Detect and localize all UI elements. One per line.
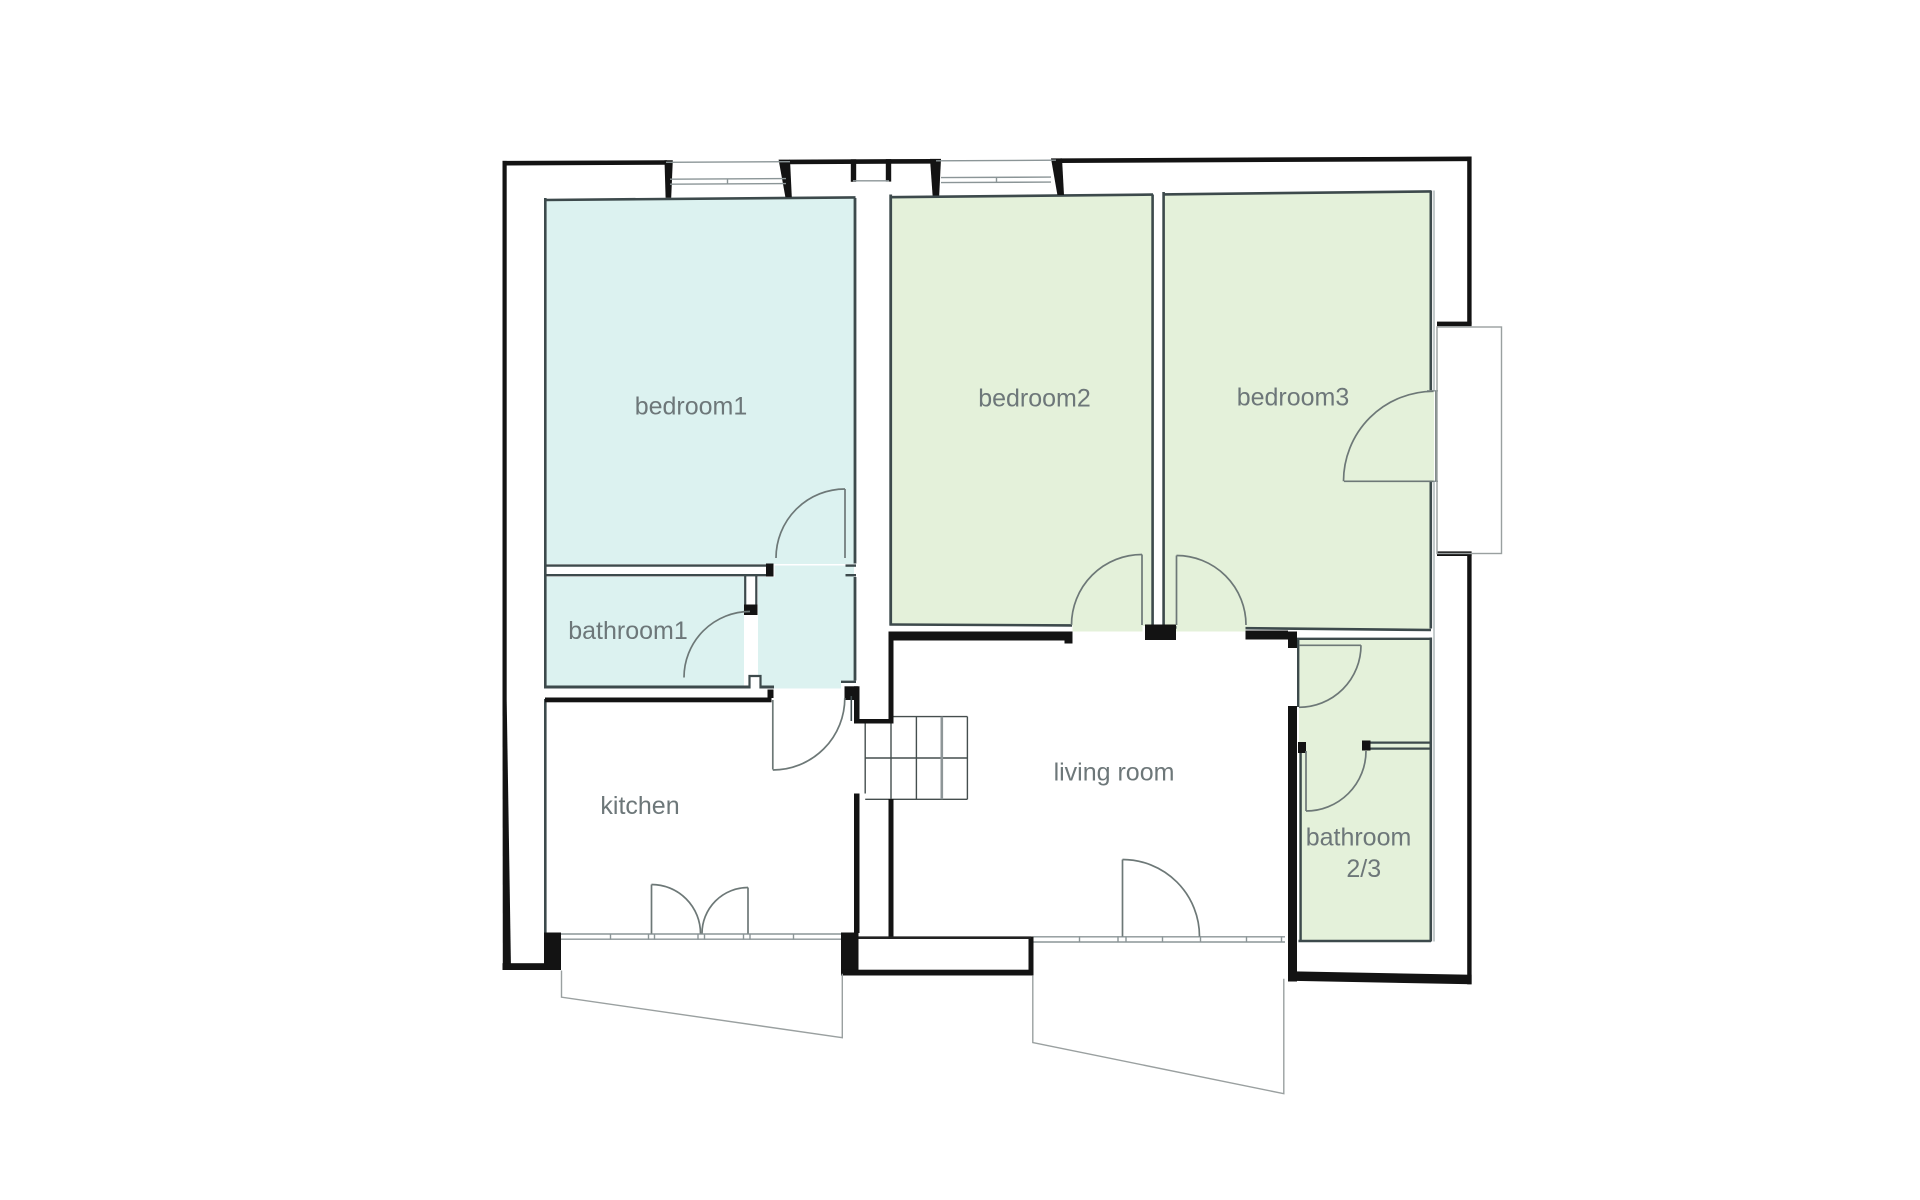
svg-text:kitchen: kitchen <box>600 792 679 820</box>
svg-text:bedroom2: bedroom2 <box>978 385 1091 413</box>
svg-text:living room: living room <box>1054 759 1175 787</box>
svg-text:bathroom: bathroom <box>1306 824 1412 852</box>
svg-text:bedroom1: bedroom1 <box>635 393 748 421</box>
svg-text:bathroom1: bathroom1 <box>568 617 688 645</box>
svg-text:bedroom3: bedroom3 <box>1237 384 1350 412</box>
svg-text:2/3: 2/3 <box>1346 855 1381 883</box>
